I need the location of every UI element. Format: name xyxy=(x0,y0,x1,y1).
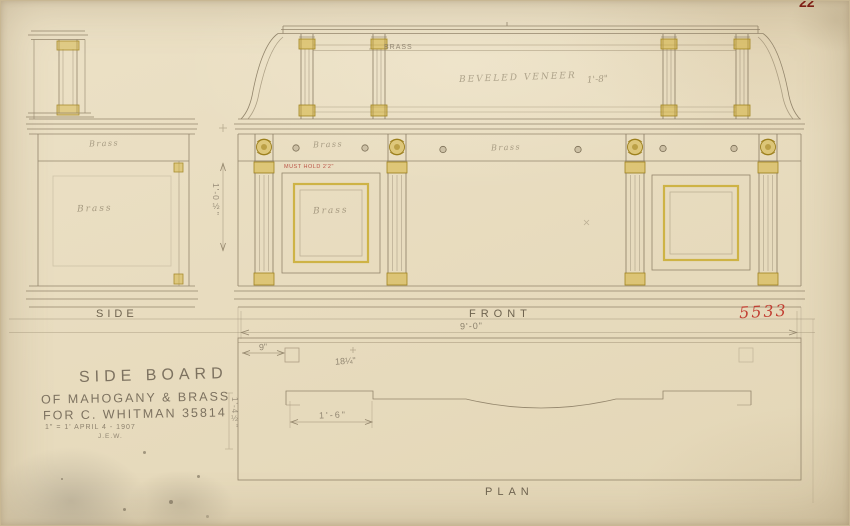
dimension-front-width: 9'-0" xyxy=(460,321,483,332)
gallery-brass-label: BRASS xyxy=(384,44,413,51)
dimension-plan-side-depth: 1'-4½" xyxy=(230,397,239,428)
dimension-plan-end-offset: 9" xyxy=(259,342,268,353)
front-drawer-center-label: Brass xyxy=(491,142,521,152)
sheet-corner-number: 22 xyxy=(799,0,815,10)
title-block-scale-date: 1" = 1' APRIL 4 - 1907 xyxy=(45,424,136,431)
view-label-side: SIDE xyxy=(96,308,138,320)
title-block-initials: J.E.W. xyxy=(98,433,123,440)
dimension-plan-notch-width: 1'-6" xyxy=(319,410,347,421)
front-drawer-left-label: Brass xyxy=(313,139,343,149)
dimension-body-height: 1'-0½" xyxy=(211,183,221,216)
view-label-plan: PLAN xyxy=(485,486,534,498)
side-drawer-label: Brass xyxy=(89,138,119,148)
side-door-label: Brass xyxy=(77,203,113,214)
front-door-left-label: Brass xyxy=(313,205,349,216)
gallery-panel-height: 1'-8" xyxy=(587,74,609,85)
dimension-plan-center-depth: 18¼" xyxy=(335,355,356,366)
drawing-linework xyxy=(1,1,850,526)
drawing-sheet: 22 BRASS BEVELED VENEER 1'-8" Brass Bras… xyxy=(0,0,850,526)
view-label-front: FRONT xyxy=(469,308,532,320)
drawing-number: 5533 xyxy=(739,301,789,323)
red-note: MUST HOLD 2'2" xyxy=(284,164,334,170)
